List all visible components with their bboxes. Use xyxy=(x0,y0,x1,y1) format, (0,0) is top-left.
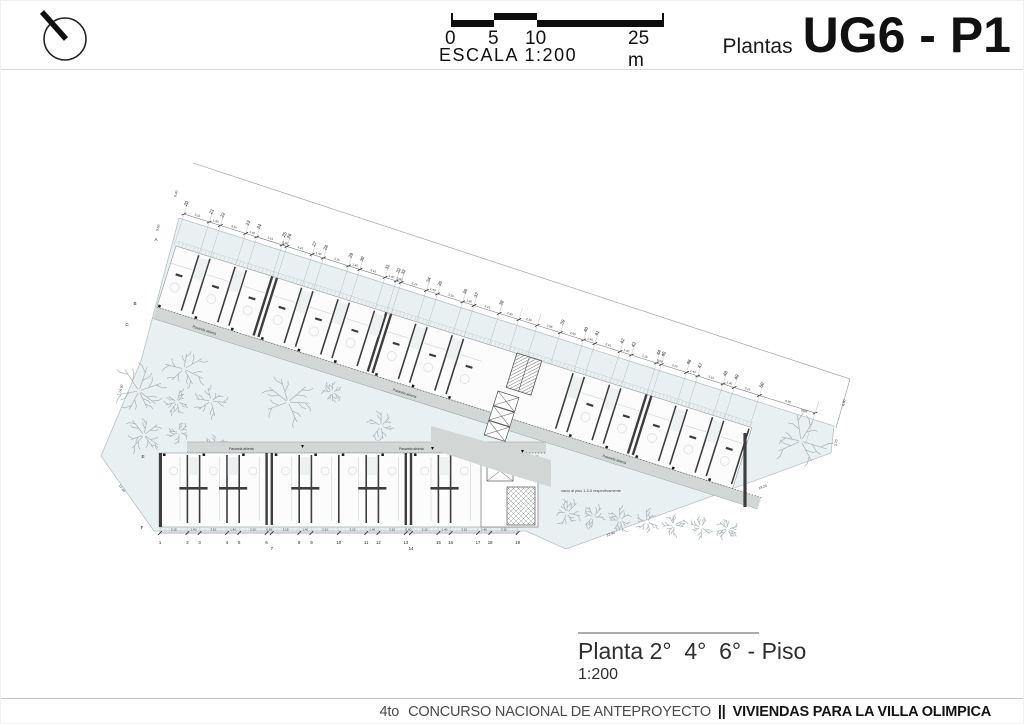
svg-text:28: 28 xyxy=(322,244,329,251)
svg-text:42: 42 xyxy=(619,337,626,344)
scale-bar-segment xyxy=(537,20,664,27)
svg-text:11: 11 xyxy=(364,540,369,545)
dim-right_upper: 6.95 xyxy=(801,408,809,414)
scale-bar-segment xyxy=(494,13,537,20)
footer-separator: || xyxy=(718,704,726,720)
dim-right_mid: 3.70 xyxy=(833,439,838,446)
footer-number: 4 xyxy=(380,704,388,720)
caption-divider xyxy=(578,632,759,634)
pasarela-label: Pasarela abierta xyxy=(229,447,254,451)
svg-text:24: 24 xyxy=(256,223,263,230)
grid-letter: F xyxy=(141,525,144,530)
scale-bar-tick xyxy=(451,13,453,20)
svg-text:46: 46 xyxy=(685,358,692,365)
dim-right_diag: 19.20 xyxy=(758,484,767,491)
svg-text:3.15: 3.15 xyxy=(283,528,289,532)
svg-text:31: 31 xyxy=(384,263,391,270)
svg-text:3.15: 3.15 xyxy=(210,528,216,532)
grid-letter: B xyxy=(133,301,136,306)
svg-text:4: 4 xyxy=(226,540,229,545)
svg-text:0.60: 0.60 xyxy=(266,528,272,532)
svg-text:39: 39 xyxy=(559,318,566,325)
north-arrow-icon xyxy=(29,3,109,67)
sheet-title: UG6 - P1 xyxy=(803,6,1011,64)
pasarela-label: Pasarela abierta xyxy=(399,447,424,451)
grid-letter: C xyxy=(125,322,129,327)
void-note: vacío al piso 1-3-5 respectivamente xyxy=(561,489,621,493)
svg-text:6: 6 xyxy=(265,540,268,545)
svg-text:3: 3 xyxy=(198,540,201,545)
dim-left_edge: 14.60 xyxy=(118,384,124,393)
svg-text:8: 8 xyxy=(298,540,301,545)
svg-text:49: 49 xyxy=(733,373,740,380)
svg-text:1.40: 1.40 xyxy=(442,528,448,532)
svg-text:1.40: 1.40 xyxy=(230,528,236,532)
dim-left_mid: 5.50 xyxy=(155,224,161,232)
scale-tick-label: 25 m xyxy=(628,28,664,72)
scale-bar: 0 5 10 25 m ESCALA 1:200 xyxy=(451,13,664,69)
drawing-caption: Planta 2° 4° 6° - Piso 1:200 xyxy=(578,632,806,684)
scale-bar-segment xyxy=(451,20,494,27)
title-prefix: Plantas xyxy=(723,35,793,69)
svg-text:26: 26 xyxy=(286,232,293,239)
svg-text:3.15: 3.15 xyxy=(350,528,356,532)
svg-text:7: 7 xyxy=(271,546,274,551)
footer-competition: CONCURSO NACIONAL DE ANTEPROYECTO xyxy=(408,704,711,720)
svg-text:29: 29 xyxy=(347,252,354,259)
footer-number-sup: to xyxy=(387,704,399,720)
scale-label: ESCALA 1:200 xyxy=(439,45,577,66)
plan-sheet: Pasarela abiertaPasarela abiertaPasarela… xyxy=(0,0,1024,724)
svg-text:1.40: 1.40 xyxy=(369,528,375,532)
sheet-footer: 4to CONCURSO NACIONAL DE ANTEPROYECTO ||… xyxy=(1,698,1024,724)
svg-text:33: 33 xyxy=(400,268,407,275)
svg-text:20: 20 xyxy=(183,200,190,207)
svg-text:1: 1 xyxy=(159,540,162,545)
svg-text:5: 5 xyxy=(238,540,241,545)
svg-text:34: 34 xyxy=(425,276,432,283)
svg-text:27: 27 xyxy=(311,240,318,247)
svg-text:38: 38 xyxy=(498,299,505,306)
svg-text:41: 41 xyxy=(594,329,601,336)
svg-text:19: 19 xyxy=(515,540,520,545)
svg-text:14: 14 xyxy=(409,546,414,551)
svg-text:40: 40 xyxy=(582,326,589,333)
svg-text:1.40: 1.40 xyxy=(481,528,487,532)
title-block: Plantas UG6 - P1 xyxy=(723,1,1011,69)
svg-text:47: 47 xyxy=(697,362,704,369)
svg-text:2: 2 xyxy=(186,540,189,545)
footer-project: VIVIENDAS PARA LA VILLA OLIMPICA xyxy=(733,704,991,720)
svg-text:9: 9 xyxy=(310,540,313,545)
svg-text:10: 10 xyxy=(336,540,341,545)
svg-text:13: 13 xyxy=(403,540,408,545)
svg-text:3.15: 3.15 xyxy=(171,528,177,532)
svg-text:36: 36 xyxy=(462,288,469,295)
svg-text:3.15: 3.15 xyxy=(422,528,428,532)
sheet-header: 0 5 10 25 m ESCALA 1:200 Plantas UG6 - P… xyxy=(1,1,1024,70)
svg-text:17: 17 xyxy=(476,540,481,545)
grid-letter: E xyxy=(141,454,144,459)
svg-text:43: 43 xyxy=(630,341,637,348)
svg-text:0.60: 0.60 xyxy=(405,528,411,532)
svg-text:37: 37 xyxy=(473,291,480,298)
caption-title: Planta 2° 4° 6° - Piso xyxy=(578,638,806,665)
dim-right_top: 4.50 xyxy=(841,399,846,406)
svg-text:16: 16 xyxy=(448,540,453,545)
svg-text:21: 21 xyxy=(208,208,215,215)
svg-text:1.40: 1.40 xyxy=(191,528,197,532)
dim-left_top: 6.40 xyxy=(173,190,179,198)
grid-letter: A xyxy=(154,237,158,242)
svg-text:3.15: 3.15 xyxy=(461,528,467,532)
svg-text:3.15: 3.15 xyxy=(389,528,395,532)
svg-text:22: 22 xyxy=(219,211,226,218)
svg-text:3.15: 3.15 xyxy=(322,528,328,532)
svg-text:12: 12 xyxy=(376,540,381,545)
scale-bar-tick xyxy=(662,13,664,20)
svg-text:3.15: 3.15 xyxy=(250,528,256,532)
svg-text:3.15: 3.15 xyxy=(501,528,507,532)
svg-text:50: 50 xyxy=(758,381,765,388)
svg-text:48: 48 xyxy=(722,370,729,377)
caption-scale: 1:200 xyxy=(578,666,806,684)
svg-text:23: 23 xyxy=(245,219,252,226)
floor-plan-drawing: Pasarela abiertaPasarela abiertaPasarela… xyxy=(1,1,1024,724)
svg-text:18: 18 xyxy=(488,540,493,545)
svg-text:45: 45 xyxy=(660,350,667,357)
svg-text:35: 35 xyxy=(436,280,443,287)
svg-text:30: 30 xyxy=(359,255,366,262)
svg-text:15: 15 xyxy=(436,540,441,545)
svg-text:1.40: 1.40 xyxy=(302,528,308,532)
